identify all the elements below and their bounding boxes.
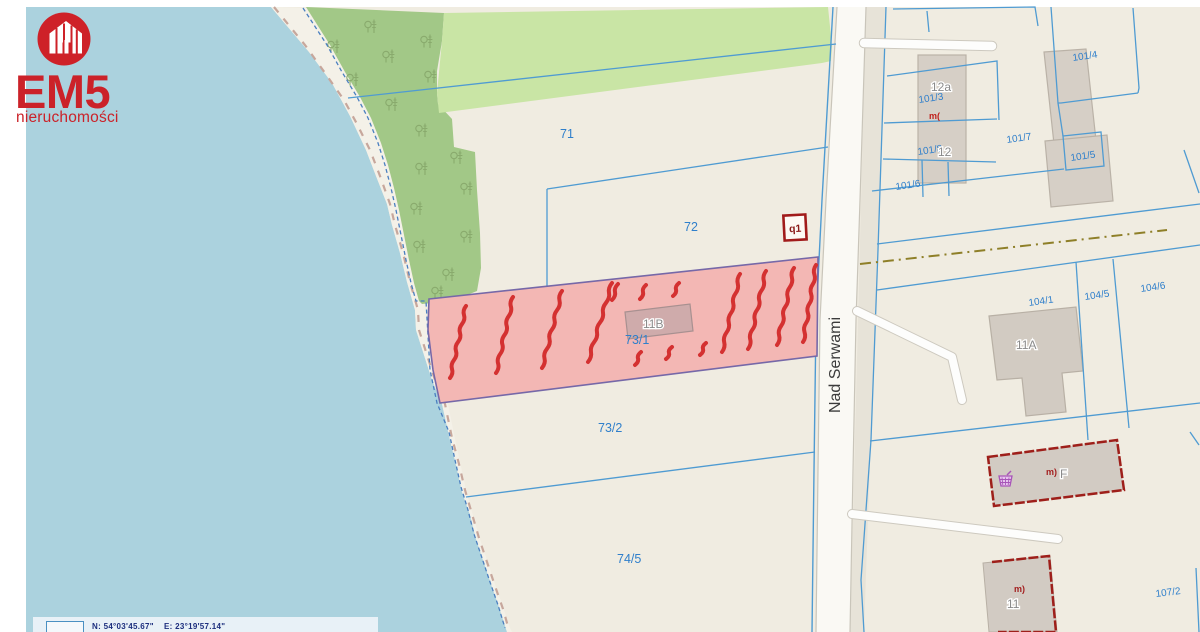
svg-text:Nad Serwami: Nad Serwami — [827, 317, 844, 413]
svg-text:72: 72 — [684, 220, 698, 234]
svg-text:q1: q1 — [789, 223, 802, 236]
svg-text:12: 12 — [938, 145, 952, 159]
svg-text:m): m) — [1014, 584, 1025, 594]
svg-text:73/2: 73/2 — [598, 421, 622, 435]
svg-text:74/5: 74/5 — [617, 552, 641, 566]
svg-text:11A: 11A — [1016, 338, 1036, 352]
svg-text:73/1: 73/1 — [625, 333, 649, 347]
svg-text:F: F — [1060, 467, 1067, 481]
svg-text:nieruchomości: nieruchomości — [16, 109, 119, 126]
svg-text:N: 54°03'45.67" E: 23°19'57: N: 54°03'45.67" E: 23°19'57.14" — [92, 622, 225, 631]
svg-text:m): m) — [1046, 467, 1057, 477]
svg-text:11B: 11B — [643, 317, 663, 331]
svg-text:11: 11 — [1007, 597, 1020, 611]
svg-text:71: 71 — [560, 127, 574, 141]
svg-text:m(: m( — [929, 111, 940, 121]
